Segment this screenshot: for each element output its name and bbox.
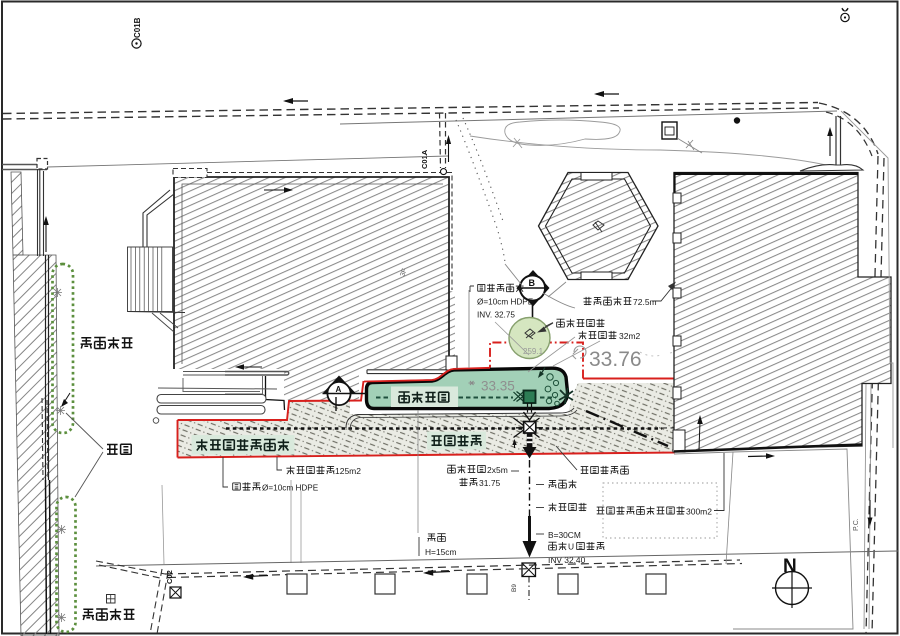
svg-text:INV. 32.75: INV. 32.75 bbox=[477, 311, 515, 320]
svg-text:Ø=10cm HDPE: Ø=10cm HDPE bbox=[477, 298, 534, 307]
svg-text:C01A: C01A bbox=[420, 149, 429, 169]
svg-text:Ø=10cm HDPE: Ø=10cm HDPE bbox=[262, 484, 319, 493]
svg-text:2x5m: 2x5m bbox=[487, 465, 508, 475]
svg-text:31.75: 31.75 bbox=[479, 478, 501, 488]
svg-text:P.C.: P.C. bbox=[853, 518, 860, 531]
svg-text:N: N bbox=[783, 556, 797, 577]
svg-text:U: U bbox=[568, 542, 574, 552]
svg-text:C02: C02 bbox=[165, 570, 174, 584]
svg-text:A: A bbox=[336, 385, 342, 394]
svg-text:259.1: 259.1 bbox=[523, 347, 544, 356]
svg-text:125m2: 125m2 bbox=[335, 466, 361, 476]
svg-text:33.35: 33.35 bbox=[481, 379, 515, 394]
svg-text:300m2: 300m2 bbox=[686, 507, 712, 517]
svg-text:72.5m: 72.5m bbox=[633, 297, 657, 307]
svg-text:H=15cm: H=15cm bbox=[425, 547, 456, 557]
svg-text:B9: B9 bbox=[511, 584, 518, 592]
svg-text:C01B: C01B bbox=[133, 17, 142, 38]
svg-text:B=30CM: B=30CM bbox=[548, 530, 581, 540]
svg-text:33.76: 33.76 bbox=[589, 348, 642, 371]
svg-text:B: B bbox=[529, 278, 536, 288]
svg-text:32m2: 32m2 bbox=[619, 331, 641, 341]
